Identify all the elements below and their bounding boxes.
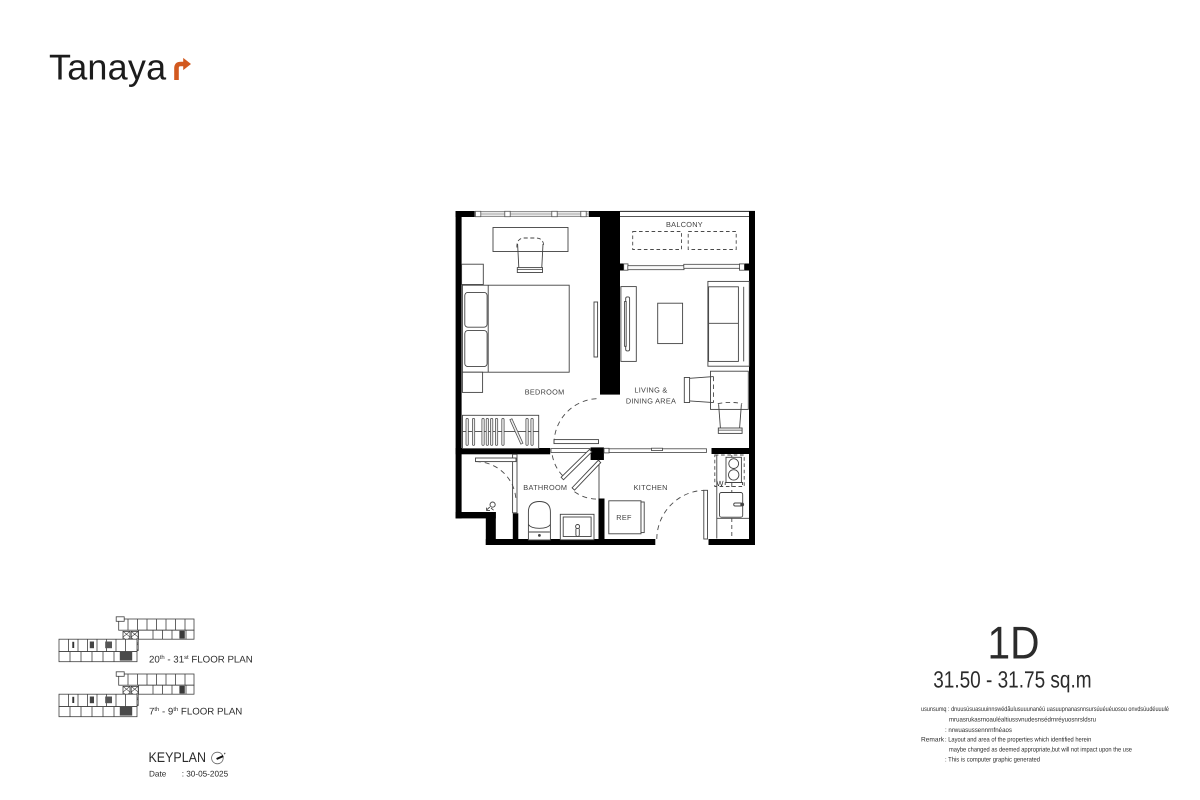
svg-text:1D: 1D — [988, 617, 1040, 669]
svg-text:REF: REF — [616, 513, 632, 522]
svg-text:31.50 - 31.75 sq.m: 31.50 - 31.75 sq.m — [933, 667, 1091, 693]
svg-text:maybe changed as deemed approp: maybe changed as deemed appropriate,but … — [949, 747, 1132, 754]
svg-text:DINING AREA: DINING AREA — [626, 396, 676, 405]
svg-text:: nrwuasussennrnfnéaos: : nrwuasussennrnfnéaos — [945, 727, 1013, 734]
svg-text:20th - 31st FLOOR PLAN: 20th - 31st FLOOR PLAN — [149, 654, 253, 665]
svg-text:: This is computer graphic gen: : This is computer graphic generated — [945, 757, 1040, 764]
svg-text:BATHROOM: BATHROOM — [523, 483, 567, 492]
svg-text:KITCHEN: KITCHEN — [634, 483, 668, 492]
svg-text:mruasrukasrnoauléaltiussvnudes: mruasrukasrnoauléaltiussvnudesnsédrnréyu… — [949, 717, 1096, 724]
svg-text:: Layout and area of the prope: : Layout and area of the properties whic… — [945, 737, 1092, 744]
svg-text:: 30-05-2025: : 30-05-2025 — [182, 770, 229, 779]
svg-text:BEDROOM: BEDROOM — [525, 388, 565, 397]
svg-text:Date: Date — [149, 770, 167, 779]
svg-text:LIVING &: LIVING & — [634, 386, 667, 395]
svg-text:W: W — [717, 479, 724, 488]
svg-text:BALCONY: BALCONY — [666, 220, 703, 229]
svg-text:Remark: Remark — [921, 737, 945, 744]
svg-text:7th - 9th FLOOR PLAN: 7th - 9th FLOOR PLAN — [149, 706, 242, 717]
svg-text:KEYPLAN: KEYPLAN — [149, 749, 207, 765]
svg-text:Tanaya: Tanaya — [49, 47, 167, 88]
svg-text:usunsumq : dnuusúsuasuuinnswéd: usunsumq : dnuusúsuasuuinnswédãulusuuuna… — [921, 706, 1169, 713]
